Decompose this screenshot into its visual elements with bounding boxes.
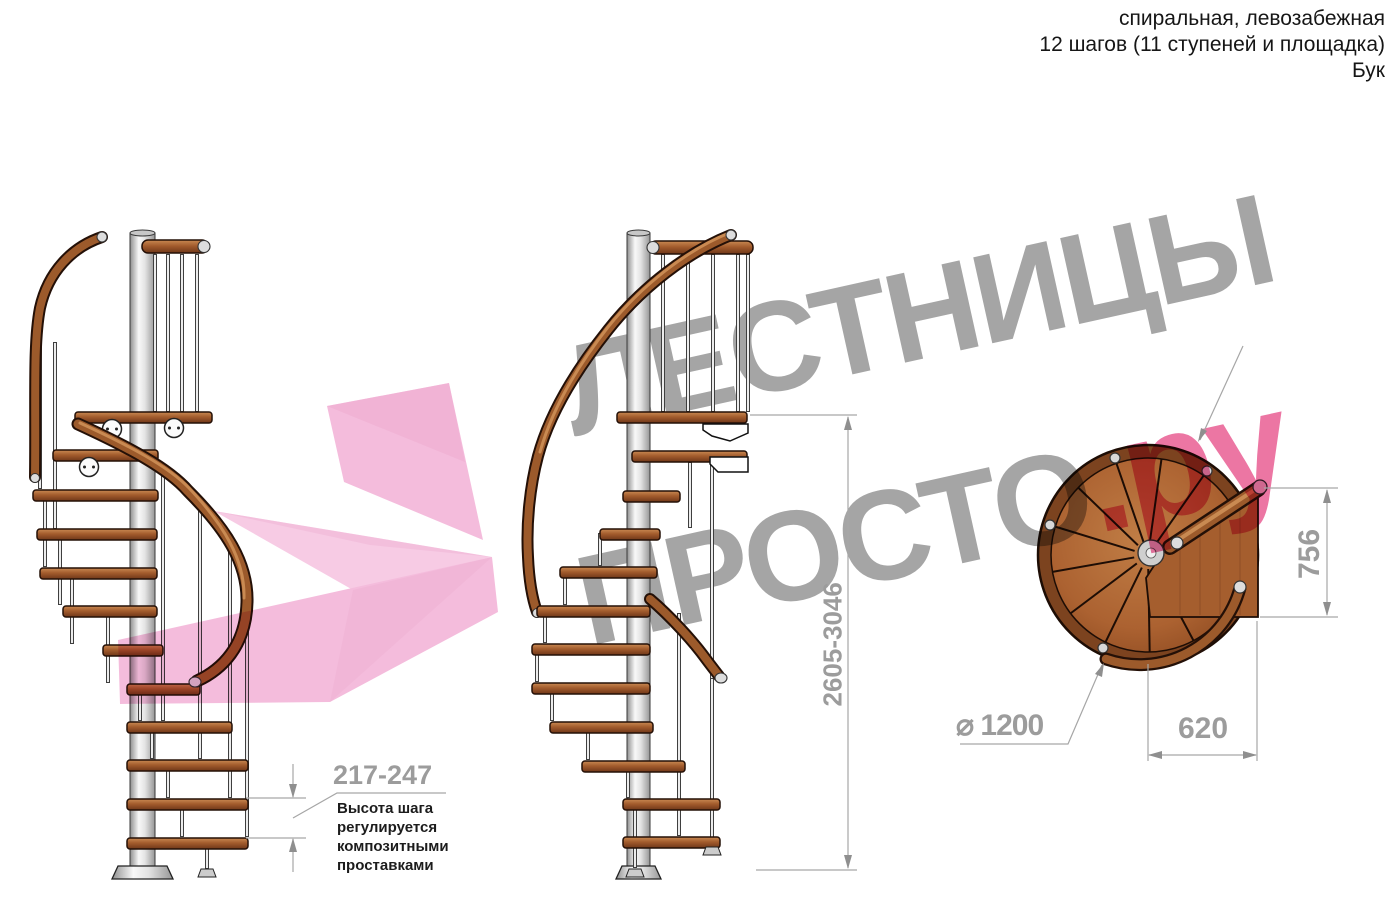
dimension-step-height: 217-247 bbox=[333, 760, 453, 791]
header-type: спиральная, левозабежная bbox=[925, 6, 1385, 32]
labels-layer: спиральная, левозабежная 12 шагов (11 ст… bbox=[0, 0, 1400, 917]
step-height-note: Высота шага регулируется композитными пр… bbox=[337, 799, 487, 875]
header-steps: 12 шагов (11 ступеней и площадка) bbox=[925, 32, 1385, 58]
dimension-landing-depth: 756 bbox=[1293, 519, 1327, 589]
drawing-header: спиральная, левозабежная 12 шагов (11 ст… bbox=[925, 6, 1385, 84]
header-material: Бук bbox=[925, 58, 1385, 84]
dimension-total-height: 2605-3046 bbox=[818, 583, 849, 707]
dimension-diameter: ⌀ 1200 bbox=[956, 708, 1072, 743]
drawing-page: ЛЕСТНИЦЫ ПРОСТО.ру bbox=[0, 0, 1400, 917]
dimension-landing-width: 620 bbox=[1158, 712, 1248, 746]
